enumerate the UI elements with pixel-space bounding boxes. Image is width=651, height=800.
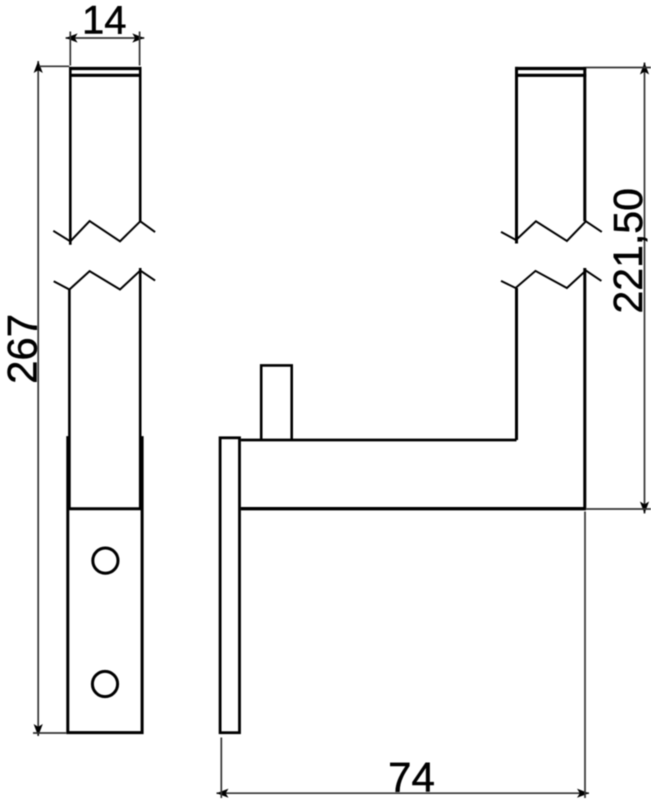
svg-text:14: 14 bbox=[82, 0, 127, 43]
svg-text:267: 267 bbox=[0, 314, 46, 384]
svg-text:221,50: 221,50 bbox=[605, 188, 651, 313]
svg-text:74: 74 bbox=[388, 753, 435, 800]
